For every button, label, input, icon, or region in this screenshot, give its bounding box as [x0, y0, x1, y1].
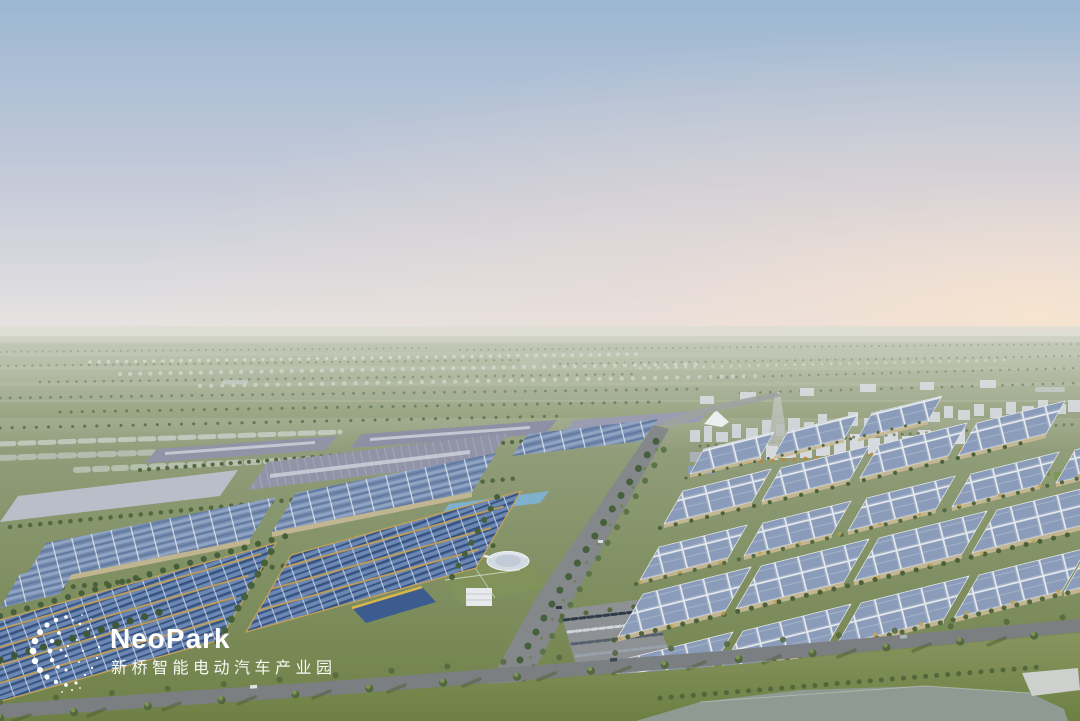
scene-canvas: NeoPark 新桥智能电动汽车产业园 [0, 0, 1080, 721]
office-building [466, 588, 492, 606]
aerial-rendering: NeoPark 新桥智能电动汽车产业园 [0, 0, 1080, 721]
sunset-glow [0, 0, 1080, 341]
car [598, 540, 603, 543]
brand-name: NeoPark [110, 623, 231, 654]
car [556, 606, 562, 609]
dome-inner-ring [495, 555, 521, 567]
sky [0, 0, 1080, 341]
brand-subtitle: 新桥智能电动汽车产业园 [111, 659, 337, 677]
